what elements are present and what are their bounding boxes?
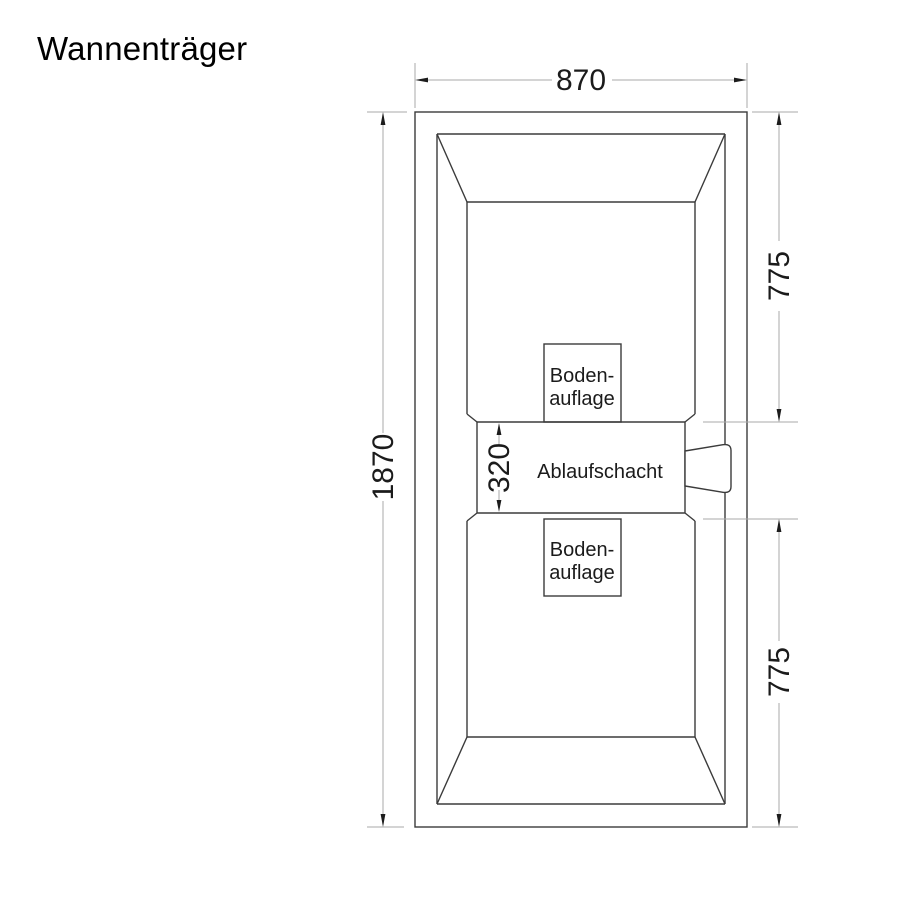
arrow-870-right <box>734 78 747 83</box>
arrow-320-bottom <box>497 500 502 512</box>
label-floor-support-top-line2: auflage <box>549 388 615 410</box>
arrow-775-upper-top <box>777 112 782 125</box>
label-floor-support-top-line1: Boden- <box>550 365 615 387</box>
drain-outlet-shape <box>685 445 731 493</box>
part-labels: Boden- auflage Ablaufschacht Boden- aufl… <box>537 365 663 584</box>
arrow-320-top <box>497 423 502 435</box>
bathtub-carrier-plan-drawing: 870 1870 775 775 320 Boden- auflage Abla… <box>0 0 900 900</box>
dimension-lines <box>367 63 798 827</box>
dim-value-drain-channel: 320 <box>483 443 516 493</box>
page-title: Wannenträger <box>37 30 247 68</box>
label-floor-support-bottom-line1: Boden- <box>550 539 615 561</box>
dim-value-right-lower: 775 <box>763 647 796 697</box>
arrow-870-left <box>415 78 428 83</box>
dim-value-height-left: 1870 <box>367 434 400 501</box>
label-floor-support-bottom-line2: auflage <box>549 562 615 584</box>
label-drain-channel: Ablaufschacht <box>537 461 663 483</box>
dim-value-right-upper: 775 <box>763 251 796 301</box>
arrow-775-lower-top <box>777 519 782 532</box>
arrow-1870-top <box>381 112 386 125</box>
arrow-775-lower-bottom <box>777 814 782 827</box>
dim-value-width-top: 870 <box>556 64 606 97</box>
technical-drawing-page: Wannenträger <box>0 0 900 900</box>
arrow-1870-bottom <box>381 814 386 827</box>
arrow-775-upper-bottom <box>777 409 782 422</box>
